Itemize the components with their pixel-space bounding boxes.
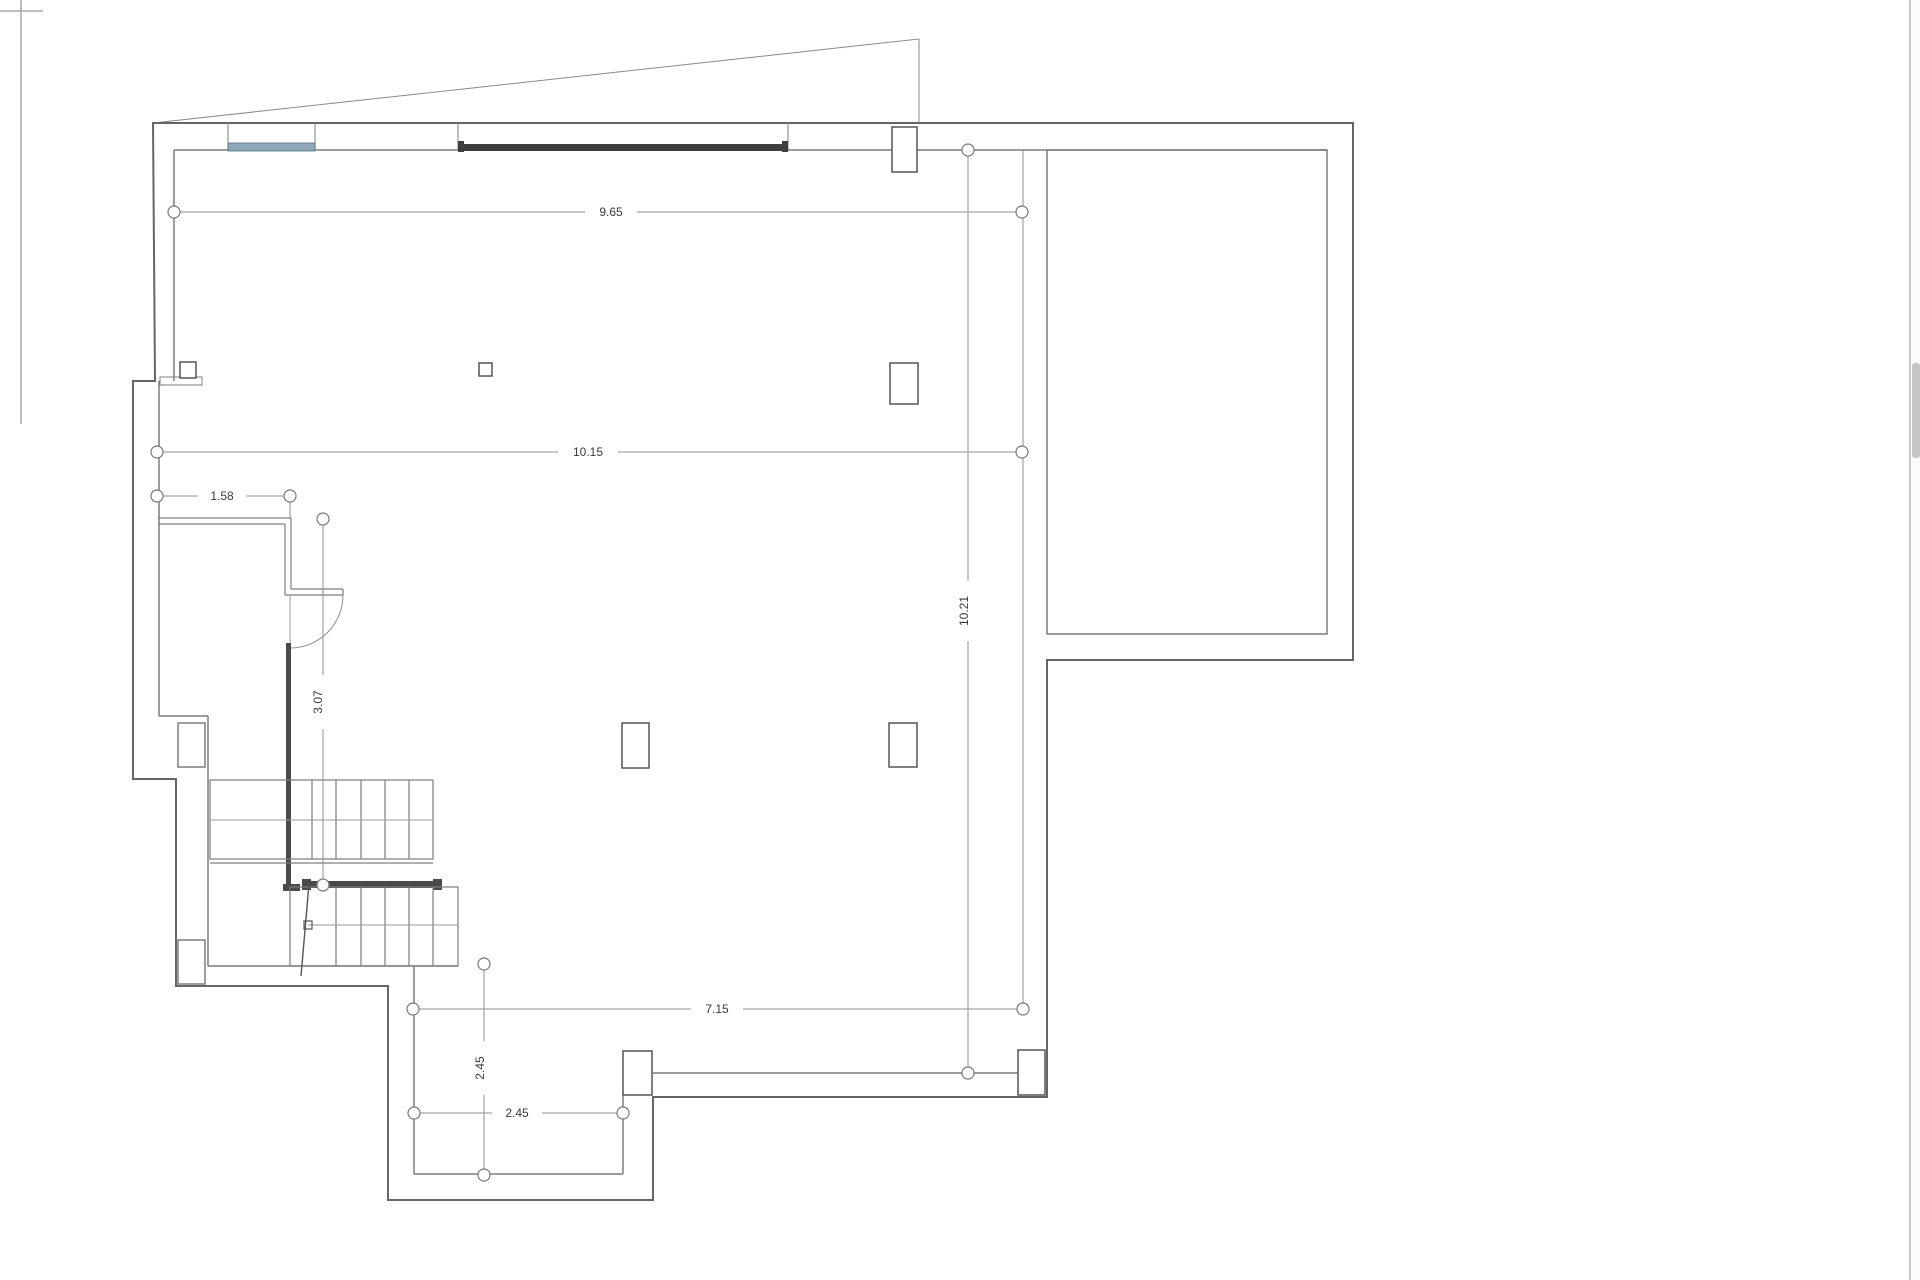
column-small-left-wall [180, 362, 196, 378]
partition-wall [158, 518, 343, 595]
scrollbar-thumb[interactable] [1912, 363, 1920, 458]
dim-end-circle [151, 446, 163, 458]
dimension-label-masks [198, 205, 976, 1120]
dim-end-circle [1016, 446, 1028, 458]
roof-slope-line [153, 39, 919, 123]
column-bottom-right [1018, 1050, 1045, 1095]
dim-label-height-right: 10.21 [957, 596, 971, 626]
dim-end-circle [962, 1067, 974, 1079]
columns [180, 127, 1045, 1095]
staircase [210, 780, 458, 976]
dim-end-circle [478, 1169, 490, 1181]
dim-label-width-mid: 10.15 [573, 445, 603, 459]
dim-label-width-top: 9.65 [599, 205, 623, 219]
dim-end-circle [168, 206, 180, 218]
dimension-labels: 9.65 10.15 1.58 7.15 2.45 3.07 2.45 10.2… [210, 205, 971, 1120]
dim-label-width-porch: 2.45 [505, 1106, 529, 1120]
pier-left-upper [178, 723, 205, 767]
handrail-end-right [433, 879, 442, 890]
wall-piers [178, 723, 205, 984]
pier-left-lower [178, 940, 205, 984]
dim-end-circle [317, 513, 329, 525]
door-swing-arc [290, 595, 343, 648]
column-mid-right [889, 723, 917, 767]
dim-end-circle [317, 879, 329, 891]
dim-end-circle [284, 490, 296, 502]
column-mid-left [622, 723, 649, 768]
stairwell-side-wall [286, 643, 291, 890]
dim-end-circle [407, 1003, 419, 1015]
door [290, 595, 343, 648]
dim-label-height-stair: 3.07 [311, 690, 325, 714]
porch-inner-lines [414, 966, 623, 1174]
column-upper-mid [890, 363, 918, 404]
dim-end-circle [1017, 1003, 1029, 1015]
pool-room [1047, 150, 1327, 634]
page-frame [0, 0, 1910, 1280]
dim-end-circle [962, 144, 974, 156]
dim-end-circle [478, 958, 490, 970]
stair-break-line [301, 884, 309, 976]
roof-outline [153, 39, 919, 123]
dim-label-width-bottom: 7.15 [705, 1002, 729, 1016]
column-small-center [479, 363, 492, 376]
scrollbar-track[interactable] [1911, 0, 1920, 1280]
stair-solid-walls [283, 643, 442, 891]
dim-end-circle [1016, 206, 1028, 218]
scrollbar[interactable] [1911, 0, 1920, 1280]
dim-end-circle [151, 490, 163, 502]
floor-plan-canvas: 9.65 10.15 1.58 7.15 2.45 3.07 2.45 10.2… [0, 0, 1920, 1280]
window1-glass [228, 143, 315, 151]
windows [228, 123, 788, 152]
interior-wall-lines [159, 150, 1327, 1073]
floor-plan-drawing: 9.65 10.15 1.58 7.15 2.45 3.07 2.45 10.2… [0, 0, 1920, 1280]
dim-label-height-porch: 2.45 [473, 1056, 487, 1080]
dim-end-circle [408, 1107, 420, 1119]
window2-end-right [782, 141, 788, 152]
window2-frame [458, 144, 788, 151]
dim-label-width-left-room: 1.58 [210, 489, 234, 503]
dim-end-circle [617, 1107, 629, 1119]
pool-room-inner-cavity [1047, 150, 1327, 634]
exterior-wall-outline [133, 123, 1353, 1200]
column-top-wall [892, 127, 917, 172]
dimension-end-markers [151, 144, 1029, 1181]
column-porch-corner [623, 1051, 652, 1095]
window2-end-left [458, 141, 464, 152]
